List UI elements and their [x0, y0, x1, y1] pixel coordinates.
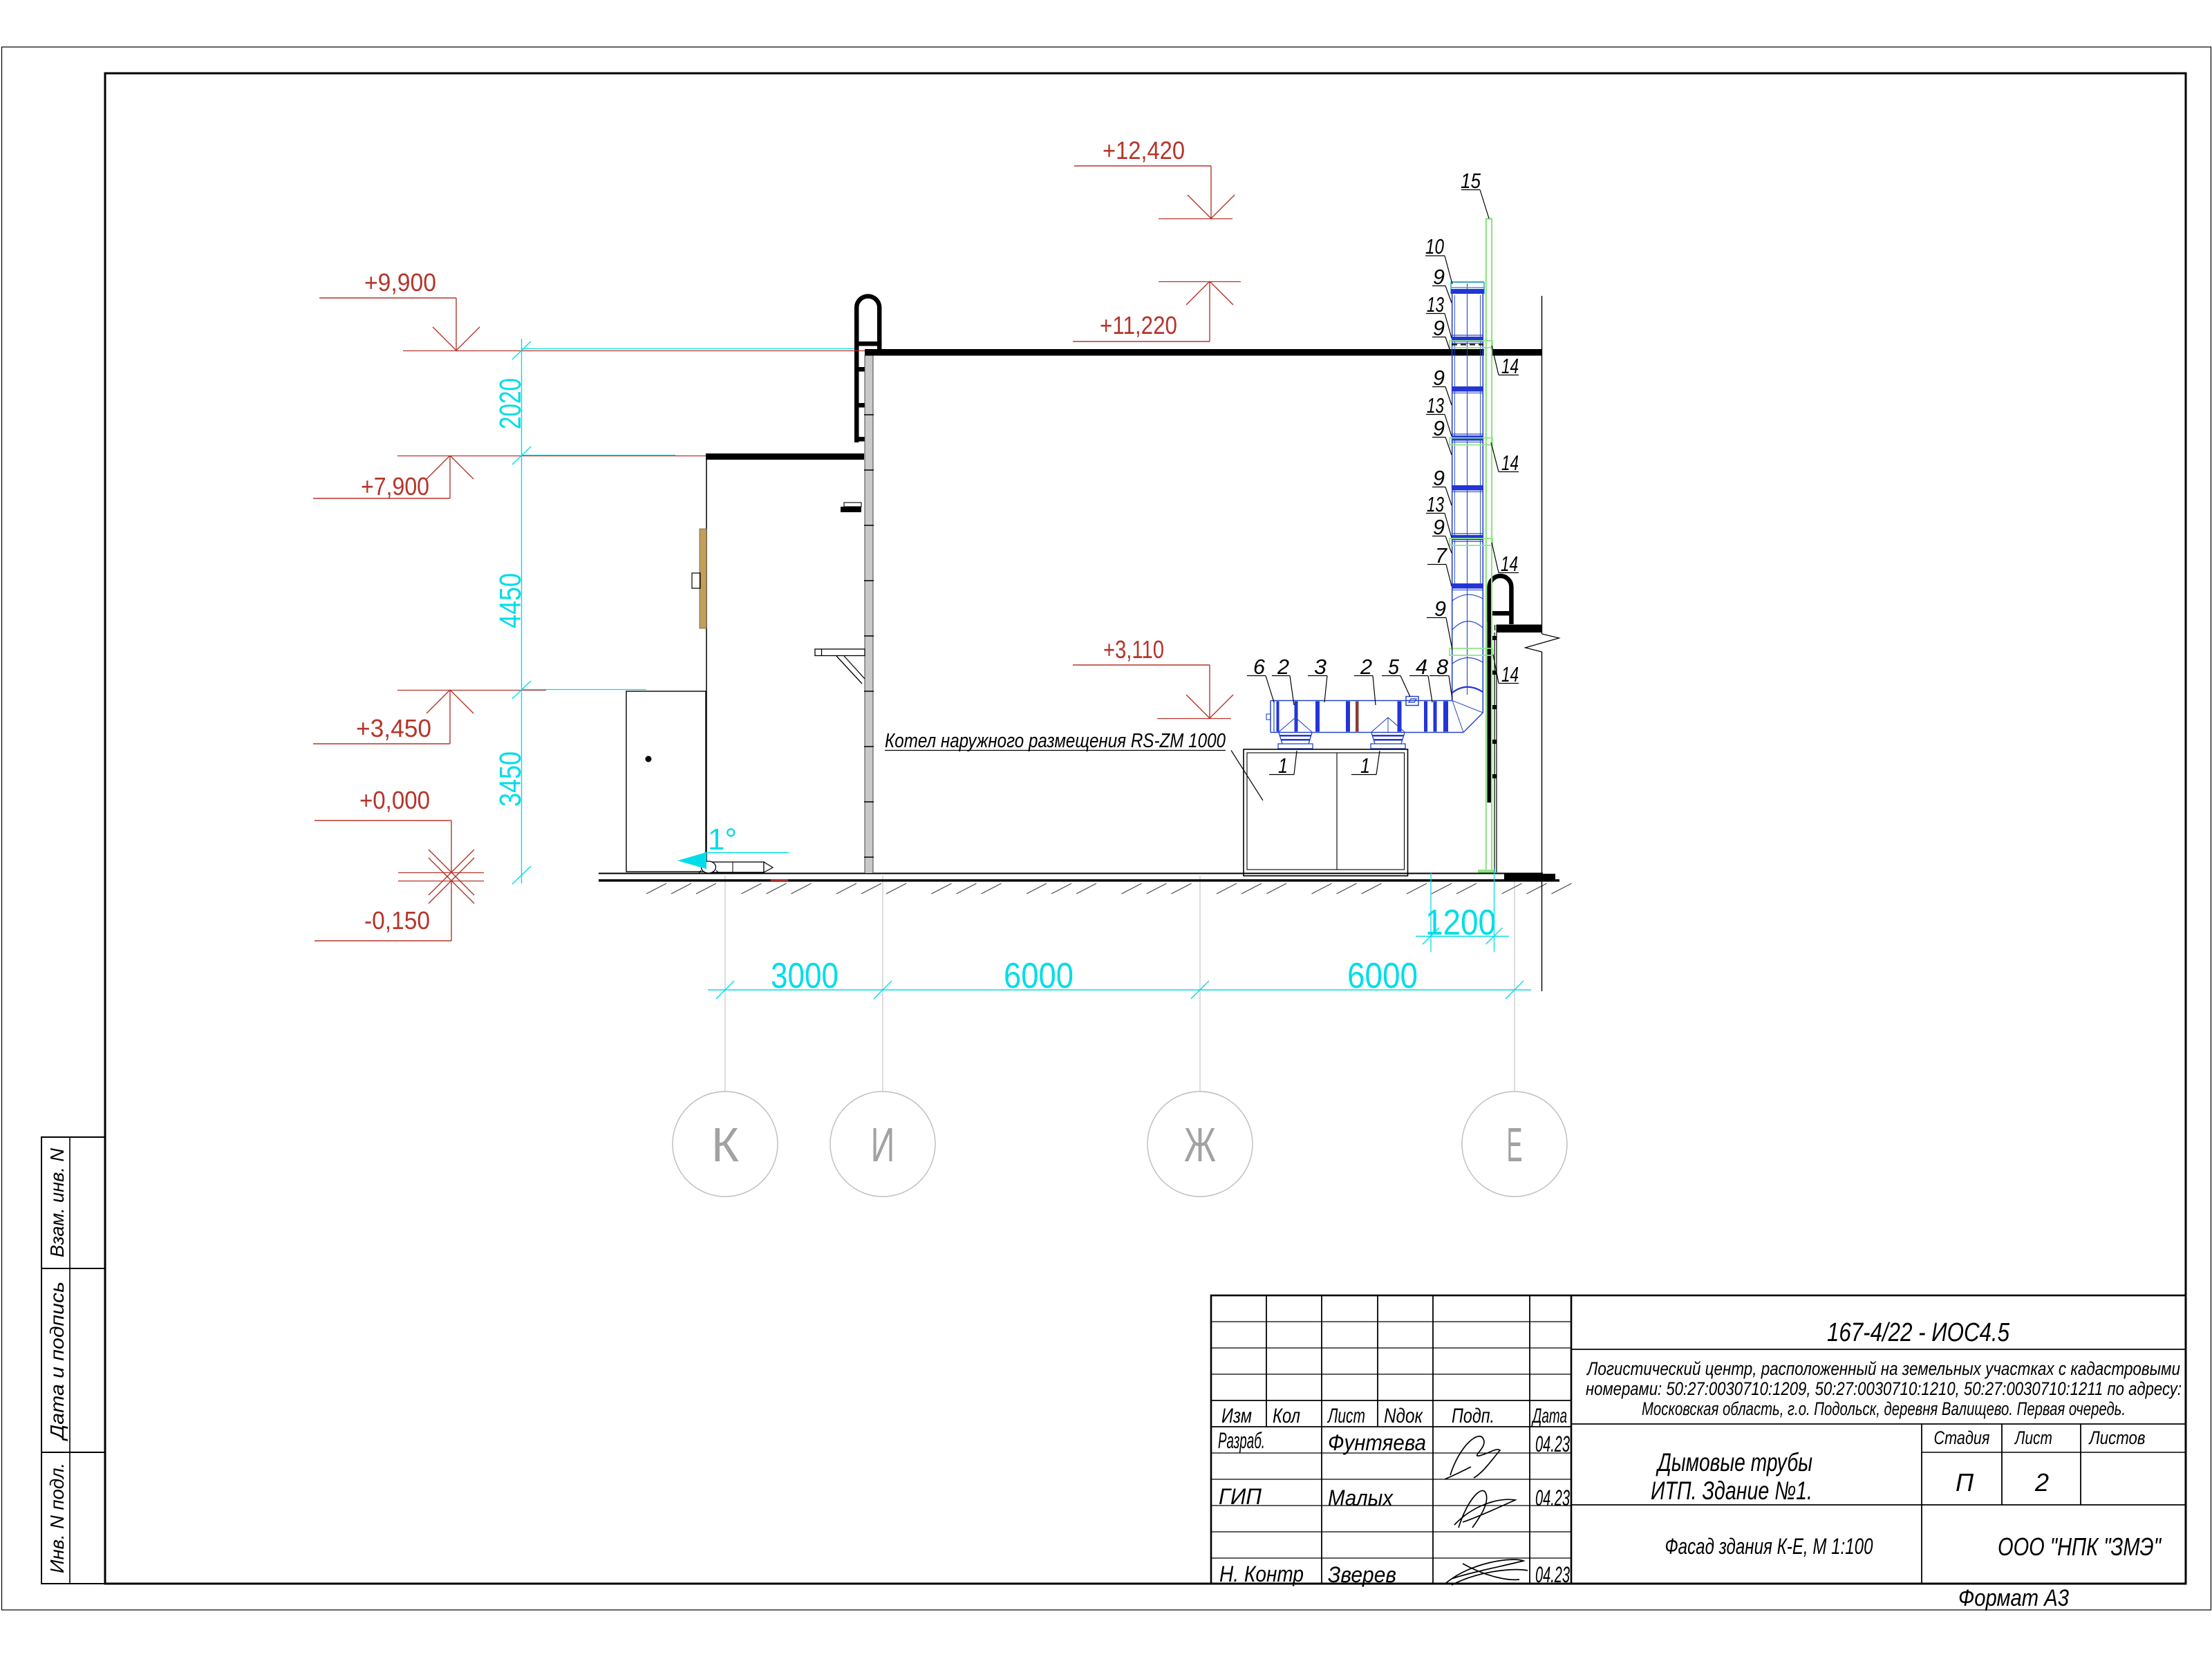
svg-text:Лист: Лист [2014, 1427, 2052, 1448]
svg-text:Фасад здания К-Е, М 1:100: Фасад здания К-Е, М 1:100 [1665, 1534, 1873, 1559]
svg-text:2020: 2020 [494, 378, 527, 429]
svg-text:04.23: 04.23 [1535, 1432, 1570, 1456]
svg-text:ИТП. Здание №1.: ИТП. Здание №1. [1651, 1477, 1812, 1505]
svg-text:+11,220: +11,220 [1100, 311, 1177, 339]
svg-text:Фунтяева: Фунтяева [1328, 1430, 1426, 1455]
svg-text:15: 15 [1461, 169, 1481, 193]
svg-text:9: 9 [1433, 515, 1445, 539]
svg-text:1200: 1200 [1425, 903, 1496, 943]
svg-text:7: 7 [1435, 543, 1448, 568]
svg-text:9: 9 [1433, 466, 1445, 490]
svg-text:Кол: Кол [1273, 1405, 1300, 1427]
svg-text:Н. Контр: Н. Контр [1219, 1562, 1304, 1586]
svg-text:К: К [711, 1118, 739, 1172]
svg-text:Дымовые трубы: Дымовые трубы [1656, 1448, 1812, 1477]
svg-text:14: 14 [1501, 552, 1518, 576]
svg-text:14: 14 [1501, 662, 1519, 686]
svg-text:8: 8 [1436, 655, 1449, 679]
svg-text:+7,900: +7,900 [361, 472, 429, 500]
svg-text:04.23: 04.23 [1535, 1485, 1570, 1510]
svg-text:Инв. N подл.: Инв. N подл. [46, 1463, 68, 1573]
svg-text:Дата: Дата [1531, 1405, 1567, 1427]
svg-text:Е: Е [1507, 1118, 1523, 1172]
svg-text:167-4/22 - ИОС4.5: 167-4/22 - ИОС4.5 [1827, 1318, 2010, 1347]
svg-text:номерами: 50:27:0030710:1209,: номерами: 50:27:0030710:1209, 50:27:0030… [1586, 1378, 2182, 1399]
svg-text:13: 13 [1427, 292, 1444, 317]
svg-text:9: 9 [1434, 597, 1446, 621]
svg-text:Формат А3: Формат А3 [1958, 1585, 2069, 1611]
svg-text:Дата и подпись: Дата и подпись [46, 1282, 68, 1441]
svg-text:1°: 1° [708, 823, 737, 856]
svg-text:3000: 3000 [771, 956, 838, 996]
svg-text:5: 5 [1388, 655, 1400, 679]
svg-text:Подп.: Подп. [1452, 1405, 1494, 1427]
svg-text:Стадия: Стадия [1934, 1427, 1990, 1448]
svg-text:+3,450: +3,450 [356, 714, 431, 742]
svg-text:Nдок: Nдок [1384, 1405, 1423, 1427]
svg-text:3450: 3450 [494, 751, 527, 807]
svg-text:+12,420: +12,420 [1103, 136, 1185, 165]
svg-text:Разраб.: Разраб. [1218, 1428, 1265, 1453]
svg-text:Московская область, г.о. Подол: Московская область, г.о. Подольск, дерев… [1642, 1398, 2126, 1419]
svg-text:6000: 6000 [1004, 956, 1074, 996]
svg-text:9: 9 [1433, 416, 1445, 440]
svg-text:13: 13 [1427, 393, 1444, 418]
svg-text:4: 4 [1416, 655, 1427, 679]
svg-text:+3,110: +3,110 [1103, 635, 1164, 664]
svg-text:И: И [871, 1118, 895, 1172]
svg-text:Малых: Малых [1328, 1485, 1394, 1510]
svg-text:6000: 6000 [1347, 956, 1418, 996]
svg-text:14: 14 [1501, 354, 1519, 378]
svg-text:2: 2 [1360, 655, 1372, 679]
svg-text:ГИП: ГИП [1219, 1484, 1262, 1509]
svg-text:Логистический центр, расположе: Логистический центр, расположенный на зе… [1586, 1358, 2180, 1379]
svg-text:+9,900: +9,900 [364, 268, 436, 297]
svg-text:3: 3 [1314, 655, 1327, 679]
svg-text:Котел наружного размещения RS-: Котел наружного размещения RS-ZM 1000 [885, 730, 1226, 752]
svg-text:4450: 4450 [494, 573, 527, 628]
svg-text:Взам. инв. N: Взам. инв. N [46, 1147, 68, 1257]
svg-text:2: 2 [1277, 655, 1289, 679]
svg-text:П: П [1956, 1468, 1974, 1497]
svg-text:10: 10 [1425, 234, 1444, 259]
svg-text:-0,150: -0,150 [364, 906, 430, 935]
svg-text:Листов: Листов [2088, 1427, 2146, 1448]
svg-text:2: 2 [2034, 1468, 2049, 1497]
svg-text:6: 6 [1253, 655, 1266, 679]
svg-text:Зверев: Зверев [1328, 1562, 1396, 1587]
svg-text:+0,000: +0,000 [359, 786, 430, 814]
svg-text:9: 9 [1433, 265, 1445, 289]
svg-text:Изм: Изм [1221, 1405, 1252, 1427]
svg-text:ООО "НПК "ЗМЭ": ООО "НПК "ЗМЭ" [1998, 1533, 2162, 1561]
svg-text:13: 13 [1427, 492, 1444, 516]
svg-text:04.23: 04.23 [1535, 1562, 1570, 1587]
svg-text:9: 9 [1433, 316, 1445, 340]
svg-text:1: 1 [1360, 753, 1370, 778]
svg-text:1: 1 [1278, 753, 1288, 778]
svg-text:9: 9 [1433, 366, 1445, 390]
svg-text:14: 14 [1501, 451, 1519, 475]
svg-text:Ж: Ж [1184, 1118, 1216, 1172]
svg-text:Лист: Лист [1327, 1405, 1365, 1427]
